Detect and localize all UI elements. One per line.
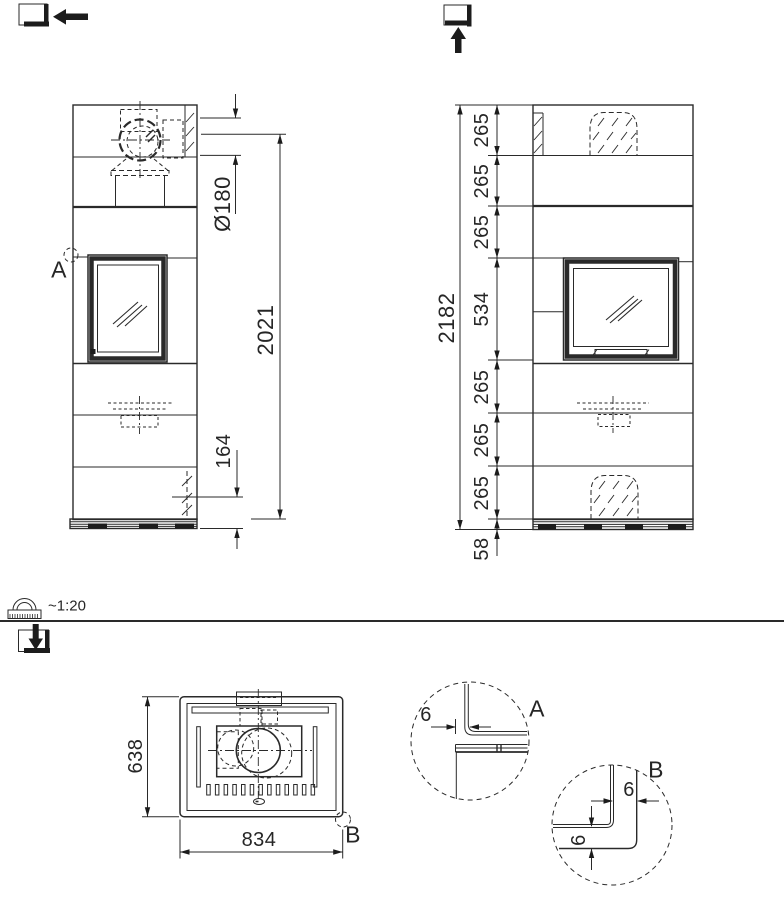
right-vent-slot [313,727,317,787]
dim-extension-lines-front [455,105,533,530]
section-hatch-top [185,105,194,157]
dim-label-segment-5: 265 [472,422,492,457]
dim-label-segment-1: 265 [472,113,492,148]
dim-label-segment-3: 265 [472,215,492,250]
dim-label-segment-4: 265 [472,369,492,404]
dim-label-width: 834 [242,830,277,850]
detail-b-gap-v-label: 6 [569,834,589,846]
detail-a-gap-label: 6 [420,705,432,725]
detail-a-reference-label: A [51,259,67,282]
detail-b-gap-h-label: 6 [623,780,635,800]
section-hatch-bottom [182,471,192,517]
dim-chain-line [494,105,499,556]
dim-label-base-height: 164 [214,434,234,469]
scale-protractor-icon [8,599,41,619]
firebox-door-front [564,258,679,360]
scale-label: ~1:20 [48,599,86,614]
dim-label-flue-height: 2021 [255,305,277,356]
detail-b [552,765,672,885]
door-handle-top-view [254,799,265,805]
view-direction-down-icon [19,624,51,653]
detail-a-title-label: A [529,698,545,721]
dim-label-firebox-height: 534 [472,292,492,327]
dim-label-flue-diameter: Ø180 [212,176,234,232]
heat-storage-dome-top [590,113,637,156]
heat-storage-dome-bottom [591,476,638,520]
left-vent-slot [197,727,201,787]
front-grille-slots [207,785,315,796]
plinth-front [533,519,693,530]
section-hatch-top-front [533,113,543,156]
air-control-hidden-detail-front [577,396,649,433]
technical-drawing-canvas: ~1:20 A Ø180 2021 164 2182 265 265 265 5… [0,0,784,901]
dim-label-segment-2: 265 [472,164,492,199]
detail-b-title-label: B [648,759,664,782]
firebox-door-side [88,255,167,362]
flue-outlet-top [111,101,183,206]
view-direction-left-icon [19,4,88,27]
dim-label-plinth-height: 58 [472,537,492,560]
dim-depth-line [142,697,179,817]
detail-a [411,682,529,800]
plinth-side [70,519,197,529]
view-direction-up-icon [444,5,472,53]
dim-label-depth: 638 [126,739,146,774]
drawing-linework [0,0,784,901]
dim-label-total-height: 2182 [436,293,458,344]
detail-b-reference-label: B [345,824,361,847]
dim-label-segment-6: 265 [472,475,492,510]
